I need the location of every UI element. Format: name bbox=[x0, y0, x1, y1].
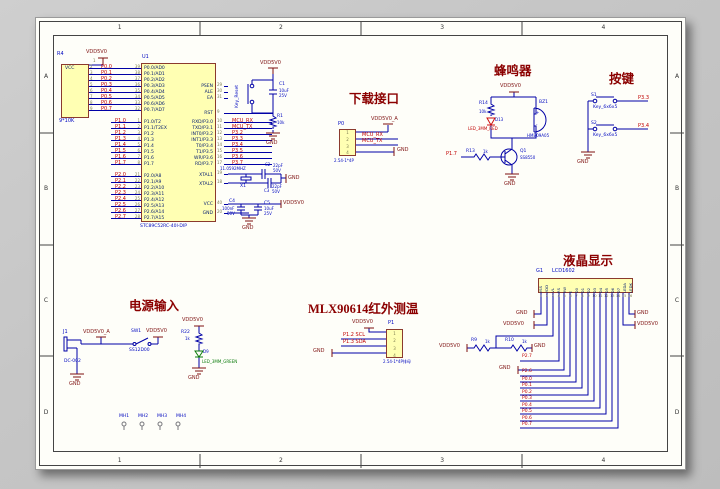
c3-voltage: 50V bbox=[272, 190, 280, 194]
gnd-label[interactable]: GND bbox=[242, 226, 253, 232]
pin-name: RD/P3.7 bbox=[177, 162, 213, 168]
zone-label: C bbox=[671, 245, 683, 357]
zone-label: A bbox=[671, 21, 683, 133]
pin-name: XTAL2 bbox=[177, 180, 213, 189]
zone-label: 3 bbox=[362, 22, 523, 34]
zone-label: 4 bbox=[523, 455, 684, 467]
mcu-body[interactable]: P0.0/AD0P0.1/AD1P0.2/AD2P0.3/AD3P0.4/AD4… bbox=[141, 63, 216, 222]
vdd5v0-power-label[interactable]: VDD5V0 bbox=[503, 322, 524, 328]
r1-value: 10k bbox=[277, 121, 284, 125]
mlx-section-title: MLX90614红外测温 bbox=[308, 298, 418, 317]
mcu-gnd-name: GND bbox=[177, 211, 213, 217]
pin-number: 15 bbox=[217, 148, 222, 153]
r4-vcc-label: VCC bbox=[65, 67, 74, 72]
zone-numbers-top: 1234 bbox=[39, 22, 684, 34]
key-part: Key_6x6x5 bbox=[593, 133, 617, 138]
pin-number: 17 bbox=[217, 160, 222, 165]
mcu-p3-names: RXD/P3.0TXD/P3.1INT0/P3.2INT1/P3.3T0/P3.… bbox=[177, 120, 213, 168]
d13-part-name: LED_3MM_RED bbox=[468, 127, 498, 131]
pin-number: 27 bbox=[135, 208, 140, 213]
vdd5v0-power-label[interactable]: VDD5V0 bbox=[260, 61, 281, 67]
q1-part: SS8550 bbox=[520, 156, 535, 160]
p1-designator[interactable]: P1 bbox=[388, 321, 394, 327]
pin-number: 4 bbox=[340, 150, 355, 157]
power-section-title: 电源输入 bbox=[129, 295, 179, 314]
pin-number: 18 bbox=[217, 179, 222, 184]
schematic-sheet[interactable]: 1234 1234 ABCD ABCD R4 VDD5V0 1 VCC 9*10… bbox=[35, 17, 686, 470]
gnd-label[interactable]: GND bbox=[188, 376, 199, 382]
d13-designator[interactable]: D13 bbox=[495, 118, 503, 122]
pin-number: 16 bbox=[217, 154, 222, 159]
pin-number: 9 bbox=[217, 109, 220, 114]
zone-label: 1 bbox=[39, 455, 200, 467]
net-label-p27[interactable]: P2.7 bbox=[522, 355, 532, 360]
mcu-designator[interactable]: U1 bbox=[142, 55, 149, 61]
gnd-label[interactable]: GND bbox=[534, 344, 545, 350]
pin-number: 40 bbox=[217, 200, 222, 205]
pin-number: 39 bbox=[135, 64, 140, 69]
pin-name: P1.7 bbox=[144, 162, 167, 168]
net-label-scl[interactable]: P1.2 SCL bbox=[343, 333, 365, 339]
key-part: Key_6x6x5 bbox=[593, 105, 617, 110]
desktop-background: 1234 1234 ABCD ABCD R4 VDD5V0 1 VCC 9*10… bbox=[0, 0, 720, 489]
pin-number: 1 bbox=[137, 118, 140, 123]
zone-label: 1 bbox=[39, 22, 200, 34]
pin-number: 8 bbox=[137, 160, 140, 165]
download-connector-body[interactable]: 1234 bbox=[339, 129, 356, 156]
r4-body[interactable]: VCC bbox=[61, 64, 89, 118]
p0-designator[interactable]: P0 bbox=[338, 122, 344, 128]
pin-number: 5 bbox=[137, 142, 140, 147]
mcu-p0-names: P0.0/AD0P0.1/AD1P0.2/AD2P0.3/AD3P0.4/AD4… bbox=[144, 66, 165, 114]
net-label-sda[interactable]: P1.3 SDA bbox=[343, 340, 366, 346]
c2-voltage: 50V bbox=[273, 169, 281, 173]
vdd5v0-power-label[interactable]: VDD5V0 bbox=[500, 84, 521, 90]
zone-label: C bbox=[40, 245, 52, 357]
zone-label: B bbox=[40, 133, 52, 245]
pin-number: 1 bbox=[340, 130, 355, 137]
zone-label: 2 bbox=[200, 22, 361, 34]
r10-value: 1k bbox=[522, 340, 527, 344]
pin-number: 37 bbox=[135, 76, 140, 81]
c5-voltage: 25V bbox=[264, 212, 272, 216]
net-label[interactable]: P0.3 bbox=[522, 396, 532, 401]
p1-footprint: 2.54-1*4P排母 bbox=[383, 360, 411, 364]
net-label[interactable]: P3.3 bbox=[638, 95, 649, 101]
net-label[interactable]: P3.7 bbox=[232, 160, 243, 166]
mcu-p2-names: P2.0/A8P2.1/A9P2.2/A10P2.3/A11P2.4/A12P2… bbox=[144, 174, 164, 222]
reset-key-name[interactable]: Key_Reset bbox=[236, 85, 241, 108]
zone-letters-right: ABCD bbox=[671, 21, 683, 468]
c1-voltage: 25V bbox=[279, 94, 287, 98]
vdd5v0-power-label[interactable]: VDD5V0 bbox=[146, 329, 167, 335]
gnd-label[interactable]: GND bbox=[266, 141, 277, 147]
r4-pin1-number: 1 bbox=[93, 59, 96, 63]
pin-number: 6 bbox=[137, 148, 140, 153]
hole-label: MH2 bbox=[138, 414, 157, 419]
bz1-designator[interactable]: BZ1 bbox=[539, 101, 548, 106]
pin-number: 25 bbox=[135, 196, 140, 201]
vdd5v0-power-label[interactable]: VDD5V0 bbox=[86, 50, 107, 56]
key-item[interactable]: S1 Key_6x6x5 P3.3 bbox=[589, 93, 649, 121]
r9-value: 1k bbox=[485, 340, 490, 344]
mcu-pin-row[interactable]: 31 bbox=[216, 95, 228, 101]
mcu-vcc-name: VCC bbox=[177, 202, 213, 208]
pin-number: 3 bbox=[340, 144, 355, 151]
pin-name: XTAL1 bbox=[177, 171, 213, 180]
c3-designator[interactable]: C3 bbox=[264, 189, 269, 193]
lcd-data-net-labels[interactable]: P0.0P0.1P0.2P0.3P0.4P0.5P0.6P0.7 bbox=[522, 377, 542, 429]
lcd-pin-names: VSSVDDVLRSRWED0D1D2D3D4D5D6D7LEDALEDK bbox=[538, 278, 633, 293]
gnd-label[interactable]: GND bbox=[499, 366, 510, 372]
net-row[interactable]: P0.7 bbox=[522, 422, 542, 429]
c4-voltage: 50V bbox=[227, 212, 235, 216]
mcu-xtal1-row[interactable]: 19 bbox=[216, 171, 228, 177]
mcu-rst-name: RST bbox=[177, 111, 213, 117]
gnd-label[interactable]: GND bbox=[516, 311, 527, 317]
zone-label: 3 bbox=[362, 455, 523, 467]
pin-number: 22 bbox=[135, 178, 140, 183]
net-label-p26[interactable]: P2.6 bbox=[522, 370, 532, 375]
hole-label: MH3 bbox=[157, 414, 176, 419]
net-label[interactable]: P0.4 bbox=[522, 403, 532, 408]
mcu-p3-rows[interactable]: 10MCU_RX11MCU_TX12P3.213P3.314P3.415P3.5… bbox=[216, 119, 272, 167]
zone-label: A bbox=[40, 21, 52, 133]
gnd-label[interactable]: GND bbox=[504, 182, 515, 188]
pin-name: EA bbox=[177, 96, 213, 102]
vdd5v0-power-label[interactable]: VDD5V0 bbox=[637, 322, 658, 328]
pin-number: 16 bbox=[627, 294, 633, 299]
zone-label: 2 bbox=[200, 455, 361, 467]
mcu-p1-names: P1.0/T2P1.1/T2EXP1.2P1.3P1.4P1.5P1.6P1.7 bbox=[144, 120, 167, 168]
pin-number: 33 bbox=[135, 100, 140, 105]
net-label[interactable]: P3.4 bbox=[638, 123, 649, 129]
net-label[interactable]: P0.6 bbox=[522, 416, 532, 421]
net-label-mcu-tx[interactable]: MCU_TX bbox=[362, 139, 382, 145]
vdd5v0-power-label[interactable]: VDD5V0 bbox=[182, 318, 203, 324]
pin-number: 1 bbox=[387, 330, 402, 337]
pin-number: 36 bbox=[135, 82, 140, 87]
key-rows[interactable]: S1 Key_6x6x5 P3.3 S2 Key_6x6x5 P3.4 bbox=[589, 93, 649, 149]
pin-number: 21 bbox=[135, 172, 140, 177]
mcu-rst-row[interactable]: 9 bbox=[216, 110, 273, 116]
vdd5v0-power-label[interactable]: VDD5V0 bbox=[352, 320, 373, 326]
net-label[interactable]: P0.0 bbox=[522, 377, 532, 382]
buzzer-section-title: 蜂鸣器 bbox=[494, 60, 532, 79]
pin-number: 28 bbox=[135, 214, 140, 219]
lcd-section-title: 液晶显示 bbox=[563, 250, 613, 269]
bz1-part: HMB09A05 bbox=[527, 134, 549, 138]
mcu-part-number[interactable]: STC89C52RC-40I-DIP bbox=[140, 225, 187, 230]
net-label[interactable]: P0.7 bbox=[522, 422, 532, 427]
pin-number: 10 bbox=[217, 118, 222, 123]
zone-numbers-bottom: 1234 bbox=[39, 455, 684, 467]
pin-name: P2.7/A15 bbox=[144, 216, 164, 222]
net-label[interactable]: P2.7 bbox=[115, 214, 126, 220]
r4-value[interactable]: 9*10K bbox=[59, 119, 74, 125]
pin-number: 34 bbox=[135, 94, 140, 99]
r14-value: 10k bbox=[479, 110, 486, 114]
mounting-hole-labels: MH1MH2MH3MH4 bbox=[119, 414, 195, 419]
r22-value: 1k bbox=[185, 337, 190, 341]
zone-label: B bbox=[671, 133, 683, 245]
buzzer-plus-mark: + bbox=[536, 111, 539, 115]
mcu-pin-row[interactable]: P2.728 bbox=[111, 215, 141, 221]
gnd-label[interactable]: GND bbox=[397, 148, 408, 154]
sw1-part: SS12D00 bbox=[129, 349, 150, 354]
pin-number: 12 bbox=[217, 130, 222, 135]
pin-number: 3 bbox=[137, 130, 140, 135]
pin-number: 35 bbox=[135, 88, 140, 93]
lcd-pin-numbers: 12345678910111213141516 bbox=[538, 294, 633, 299]
mcu-ctrl-names: PSENALEEA bbox=[177, 84, 213, 102]
mcu-p2-rows[interactable]: P2.021P2.122P2.223P2.324P2.425P2.526P2.6… bbox=[111, 173, 141, 221]
pin-number: 14 bbox=[217, 142, 222, 147]
mcu-xtal2-row[interactable]: 18 bbox=[216, 180, 228, 186]
pin-number: 4 bbox=[137, 136, 140, 141]
buzzer-minus-mark: - bbox=[536, 123, 537, 127]
pin-number: 3 bbox=[387, 345, 402, 352]
mcu-p1-rows[interactable]: P1.01P1.12P1.23P1.34P1.45P1.56P1.67P1.78 bbox=[111, 119, 141, 167]
net-label[interactable]: P0.5 bbox=[522, 409, 532, 414]
pin-number: 4 bbox=[387, 352, 402, 359]
key-designator[interactable]: S1 bbox=[591, 93, 597, 98]
net-label[interactable]: P0.7 bbox=[101, 106, 112, 112]
pin-number: 7 bbox=[137, 154, 140, 159]
r10-designator[interactable]: R10 bbox=[505, 339, 514, 344]
pin-number: 2 bbox=[137, 124, 140, 129]
pin-number: 32 bbox=[135, 106, 140, 111]
d9-designator[interactable]: D9 bbox=[203, 350, 209, 354]
zone-label: 4 bbox=[523, 22, 684, 34]
hole-label: MH4 bbox=[176, 414, 195, 419]
pin-number: 24 bbox=[135, 190, 140, 195]
pin-name-cell: LEDK bbox=[627, 278, 633, 293]
pin-number: 2 bbox=[340, 137, 355, 144]
pin-number: 11 bbox=[217, 124, 222, 129]
net-label[interactable]: P0.1 bbox=[522, 383, 532, 388]
mlx-connector-body[interactable]: 1234 bbox=[386, 329, 403, 358]
pin-number: 29 bbox=[217, 82, 222, 87]
zone-label: D bbox=[671, 356, 683, 468]
pin-name: P0.7/AD7 bbox=[144, 108, 165, 114]
pin-number: 31 bbox=[217, 94, 222, 99]
net-label[interactable]: P0.2 bbox=[522, 390, 532, 395]
j1-designator[interactable]: J1 bbox=[63, 330, 68, 336]
x1-designator[interactable]: X1 bbox=[240, 185, 246, 190]
mcu-pin-row[interactable]: P1.78 bbox=[111, 161, 141, 167]
lcd-part[interactable]: LCD1602 bbox=[552, 269, 575, 275]
mcu-ctrl-rows[interactable]: 293031 bbox=[216, 83, 228, 101]
pin-number: 38 bbox=[135, 70, 140, 75]
gnd-label[interactable]: GND bbox=[69, 382, 80, 388]
r14-designator[interactable]: R14 bbox=[479, 102, 488, 107]
key-designator[interactable]: S2 bbox=[591, 121, 597, 126]
pin-number: 26 bbox=[135, 202, 140, 207]
zone-letters-left: ABCD bbox=[40, 21, 52, 468]
zone-label: D bbox=[40, 356, 52, 468]
c4-designator[interactable]: C4 bbox=[229, 200, 235, 205]
sw1-designator[interactable]: SW1 bbox=[131, 330, 141, 335]
gnd-label[interactable]: GND bbox=[313, 349, 324, 355]
vdd5v0a-power-label[interactable]: VDD5V0_A bbox=[83, 330, 110, 336]
r13-value: 1k bbox=[483, 150, 488, 154]
j1-part: DC-002 bbox=[64, 360, 81, 365]
vdd5v0-power-label[interactable]: VDD5V0 bbox=[283, 201, 304, 207]
hole-label: MH1 bbox=[119, 414, 138, 419]
pin-number: 30 bbox=[217, 88, 222, 93]
net-label-p17[interactable]: P1.7 bbox=[446, 152, 457, 158]
mcu-pin-row[interactable]: P0.732 bbox=[89, 107, 141, 113]
vdd5v0-power-label[interactable]: VDD5V0 bbox=[439, 344, 460, 350]
vdd5v0a-power-label[interactable]: VDD5V0_A bbox=[371, 117, 398, 123]
d9-part-name: LED_3MM_GREEN bbox=[202, 360, 237, 364]
crystal-frequency: 11.0592MHZ bbox=[220, 167, 246, 171]
r4-designator[interactable]: R4 bbox=[57, 52, 64, 58]
net-label[interactable]: P1.7 bbox=[115, 160, 126, 166]
gnd-label[interactable]: GND bbox=[637, 311, 648, 317]
gnd-label[interactable]: GND bbox=[288, 176, 299, 182]
gnd-label[interactable]: GND bbox=[577, 160, 588, 166]
r9-designator[interactable]: R9 bbox=[471, 339, 477, 344]
pin-number: 23 bbox=[135, 184, 140, 189]
lcd-designator[interactable]: G1 bbox=[536, 269, 543, 275]
download-section-title: 下载接口 bbox=[349, 88, 399, 107]
mcu-p0-rows[interactable]: P0.039P0.138P0.237P0.336P0.435P0.534P0.6… bbox=[89, 65, 141, 113]
r13-designator[interactable]: R13 bbox=[466, 150, 475, 155]
pin-number: 2 bbox=[387, 337, 402, 344]
keys-section-title: 按键 bbox=[609, 68, 634, 87]
p0-footprint: 2.54-1*4P bbox=[334, 159, 354, 163]
key-item[interactable]: S2 Key_6x6x5 P3.4 bbox=[589, 121, 649, 149]
pin-number: 13 bbox=[217, 136, 222, 141]
mcu-xtal-names: XTAL1XTAL2 bbox=[177, 171, 213, 189]
c2-designator[interactable]: C2 bbox=[265, 163, 270, 167]
